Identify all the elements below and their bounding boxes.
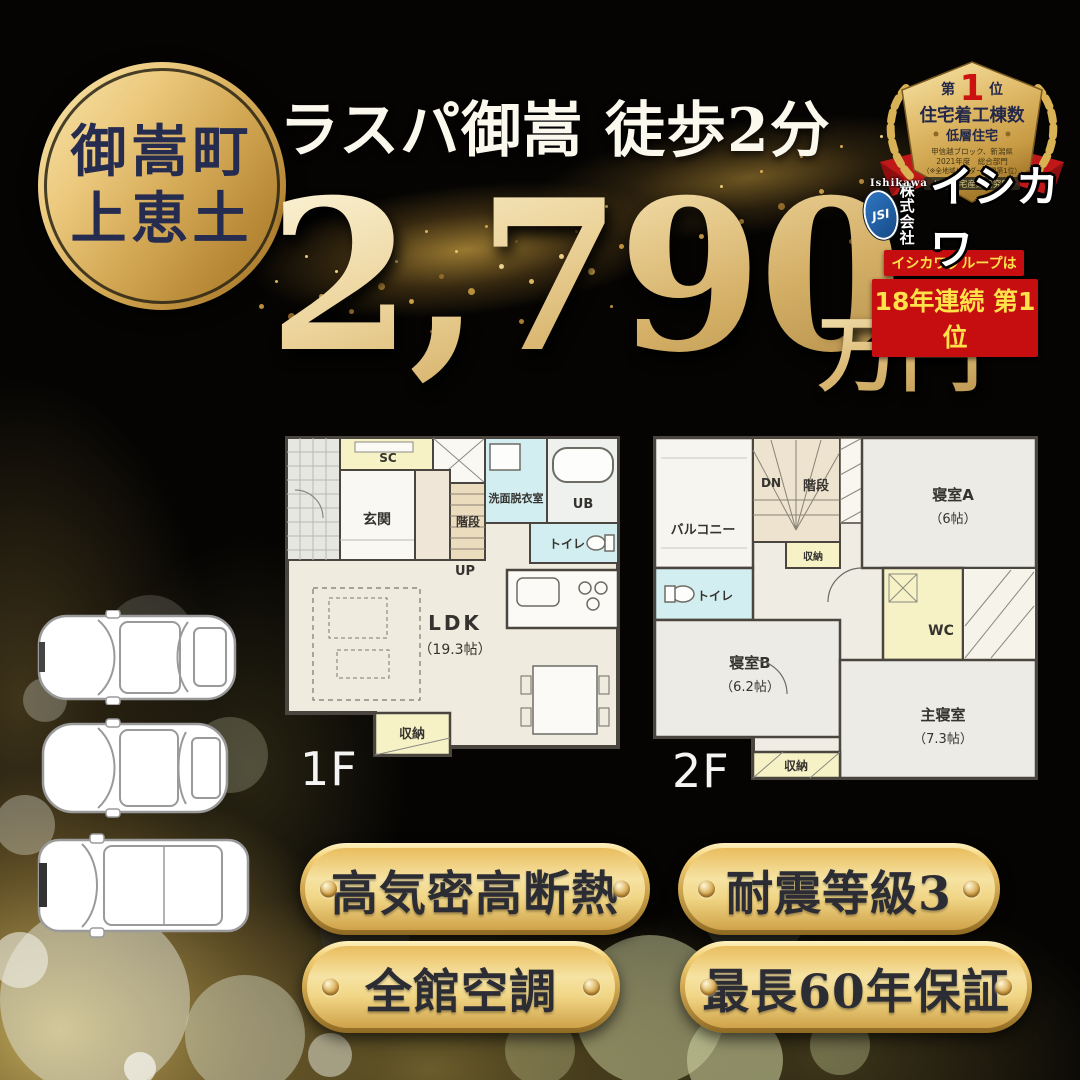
company-block: Ishikawa JSI 株式 会社 イシカワ イシカワグループは 18年連続 …	[866, 186, 1080, 357]
feature-label: 耐震等級3	[726, 855, 952, 924]
gold-sparkle-dots	[0, 0, 3, 3]
rivet-icon	[700, 979, 717, 996]
rivet-icon	[698, 881, 715, 898]
company-prefix: 株式 会社	[900, 184, 926, 247]
company-prefix-bottom: 会社	[900, 215, 926, 247]
location-line2: 上恵土	[71, 188, 254, 251]
room-label-bedroom-a-size: （6帖）	[929, 512, 976, 527]
floorplan-1f: SC 玄関 階段 UP 洗面脱衣室 UB トイレ	[285, 428, 620, 760]
rivet-icon	[322, 979, 339, 996]
feature-badge-seismic: 耐震等級3	[678, 843, 1000, 935]
feature-label: 最長60年保証	[702, 953, 1009, 1022]
room-label-ub: UB	[573, 497, 593, 512]
room-label-up: UP	[455, 564, 475, 579]
price-value: 2,790	[268, 168, 899, 386]
location-line1: 御嵩町	[71, 121, 254, 184]
company-logo: Ishikawa JSI 株式 会社 イシカワ	[866, 186, 1080, 244]
room-label-toilet-1f: トイレ	[549, 537, 585, 551]
room-label-senmen: 洗面脱衣室	[489, 491, 544, 505]
room-label-kaidan-1f: 階段	[456, 514, 481, 529]
room-label-bedroom-a: 寝室A	[932, 486, 974, 504]
rivet-icon	[613, 881, 630, 898]
room-label-balcony: バルコニー	[671, 523, 736, 538]
car-top-view-icon	[40, 718, 230, 818]
feature-label: 高気密高断熱	[331, 855, 619, 924]
room-label-sc: SC	[379, 451, 397, 465]
room-label-kaidan-2f: 階段	[803, 478, 829, 494]
bokeh-circle	[0, 932, 48, 988]
floorplan-2f: バルコニー DN 階段 収納 寝室A （6帖） トイレ	[653, 430, 1038, 780]
room-label-ldk-size: （19.3帖）	[418, 642, 491, 658]
room-label-bedroom-b: 寝室B	[729, 654, 770, 672]
room-label-master-size: （7.3帖）	[913, 732, 973, 747]
room-label-genkan: 玄関	[363, 511, 391, 528]
feature-badge-warranty: 最長60年保証	[680, 941, 1032, 1033]
room-label-wc: WC	[928, 623, 954, 639]
room-label-dn: DN	[761, 476, 781, 490]
flyer-canvas: 御嵩町 上恵土 ラスパ御嵩 徒歩2分 2,790 万円 第 1 位 住宅着工棟数	[0, 0, 1080, 1080]
company-monogram-icon: JSI	[862, 189, 901, 240]
company-latin-name: Ishikawa	[870, 178, 928, 189]
feature-badge-insulation: 高気密高断熱	[300, 843, 650, 935]
award-category: 住宅着工棟数	[920, 105, 1025, 126]
award-subcategory: 低層住宅	[945, 128, 998, 144]
award-rank-suffix: 位	[989, 81, 1003, 98]
company-banner-2: 18年連続 第1位	[872, 279, 1038, 357]
rivet-icon	[963, 881, 980, 898]
car-top-view-icon	[36, 833, 251, 938]
rivet-icon	[320, 881, 337, 898]
rivet-icon	[583, 979, 600, 996]
bokeh-circle	[185, 975, 305, 1080]
floor-label-1f: 1F	[300, 742, 358, 796]
feature-badge-aircon: 全館空調	[302, 941, 620, 1033]
room-label-ldk: LDK	[428, 611, 482, 635]
room-label-shuno-top: 収納	[803, 550, 823, 563]
bokeh-circle	[308, 1033, 352, 1077]
rivet-icon	[995, 979, 1012, 996]
room-label-bedroom-b-size: （6.2帖）	[720, 680, 780, 695]
car-top-view-icon	[36, 610, 238, 705]
room-label-master: 主寝室	[920, 706, 965, 724]
floor-label-2f: 2F	[672, 744, 730, 798]
award-rank-number: 1	[959, 68, 984, 109]
company-name: イシカワ	[930, 153, 1080, 277]
award-rank-prefix: 第	[941, 81, 955, 98]
room-label-shuno-bottom: 収納	[784, 758, 808, 773]
location-badge: 御嵩町 上恵土	[38, 62, 286, 310]
feature-label: 全館空調	[365, 953, 557, 1022]
room-label-shuno-1f: 収納	[399, 726, 425, 742]
room-label-toilet-2f: トイレ	[697, 589, 733, 603]
bokeh-circle	[124, 1052, 156, 1080]
